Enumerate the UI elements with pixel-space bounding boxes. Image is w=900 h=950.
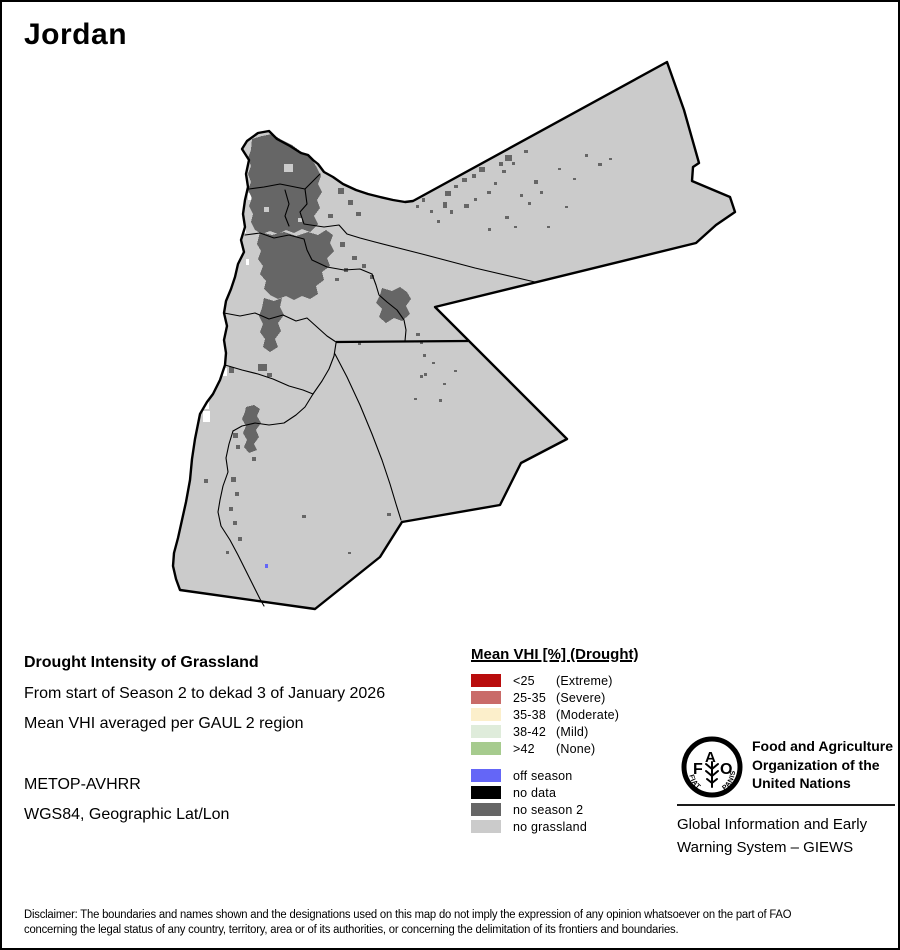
fao-logo-icon: F A O FIAT PANIS: [680, 735, 744, 799]
legend-row-extreme: <25 (Extreme): [471, 672, 686, 689]
admin-boundary-thick: [336, 341, 468, 342]
legend-label: (None): [556, 742, 595, 756]
giews-line1: Global Information and Early: [677, 813, 867, 836]
legend-row-none: >42 (None): [471, 740, 686, 757]
legend-label: no data: [513, 786, 556, 800]
legend-row-severe: 25-35 (Severe): [471, 689, 686, 706]
legend-title: Mean VHI [%] (Drought): [471, 646, 686, 663]
fao-org-line3: United Nations: [752, 774, 893, 793]
legend-range: >42: [513, 742, 556, 756]
legend-range: <25: [513, 674, 556, 688]
period-line: From start of Season 2 to dekad 3 of Jan…: [24, 685, 385, 703]
map-document: Jordan: [0, 0, 900, 950]
legend-swatch-nodata: [471, 786, 501, 799]
legend-swatch-none: [471, 742, 501, 755]
legend-swatch-extreme: [471, 674, 501, 687]
off-season-dot: [265, 564, 268, 568]
disclaimer-line2: concerning the legal status of any count…: [24, 923, 791, 938]
legend-label: no grassland: [513, 820, 587, 834]
legend-swatch-nograssland: [471, 820, 501, 833]
legend-swatch-moderate: [471, 708, 501, 721]
fao-org-line2: Organization of the: [752, 756, 893, 775]
legend: Mean VHI [%] (Drought) <25 (Extreme) 25-…: [471, 646, 686, 835]
fao-divider: [677, 804, 895, 806]
legend-label: (Mild): [556, 725, 588, 739]
legend-group-gap: [471, 757, 686, 767]
legend-label: (Moderate): [556, 708, 619, 722]
legend-label: no season 2: [513, 803, 583, 817]
legend-swatch-noseason2: [471, 803, 501, 816]
legend-label: (Extreme): [556, 674, 613, 688]
legend-label: off season: [513, 769, 572, 783]
aggregation-line: Mean VHI averaged per GAUL 2 region: [24, 715, 304, 733]
legend-row-noseason2: no season 2: [471, 801, 686, 818]
legend-swatch-offseason: [471, 769, 501, 782]
legend-row-nograssland: no grassland: [471, 818, 686, 835]
legend-range: 25-35: [513, 691, 556, 705]
legend-row-mild: 38-42 (Mild): [471, 723, 686, 740]
legend-range: 38-42: [513, 725, 556, 739]
giews-line2: Warning System – GIEWS: [677, 836, 867, 859]
legend-label: (Severe): [556, 691, 606, 705]
legend-row-moderate: 35-38 (Moderate): [471, 706, 686, 723]
map-subtitle: Drought Intensity of Grassland: [24, 654, 259, 672]
disclaimer-line1: Disclaimer: The boundaries and names sho…: [24, 908, 791, 923]
legend-swatch-mild: [471, 725, 501, 738]
giews-name: Global Information and Early Warning Sys…: [677, 813, 867, 859]
legend-row-nodata: no data: [471, 784, 686, 801]
fao-org-line1: Food and Agriculture: [752, 737, 893, 756]
disclaimer: Disclaimer: The boundaries and names sho…: [24, 908, 791, 938]
fao-org-name: Food and Agriculture Organization of the…: [752, 737, 893, 793]
legend-swatch-severe: [471, 691, 501, 704]
sensor-line: METOP-AVHRR: [24, 776, 141, 794]
projection-line: WGS84, Geographic Lat/Lon: [24, 806, 229, 824]
legend-range: 35-38: [513, 708, 556, 722]
legend-row-offseason: off season: [471, 767, 686, 784]
